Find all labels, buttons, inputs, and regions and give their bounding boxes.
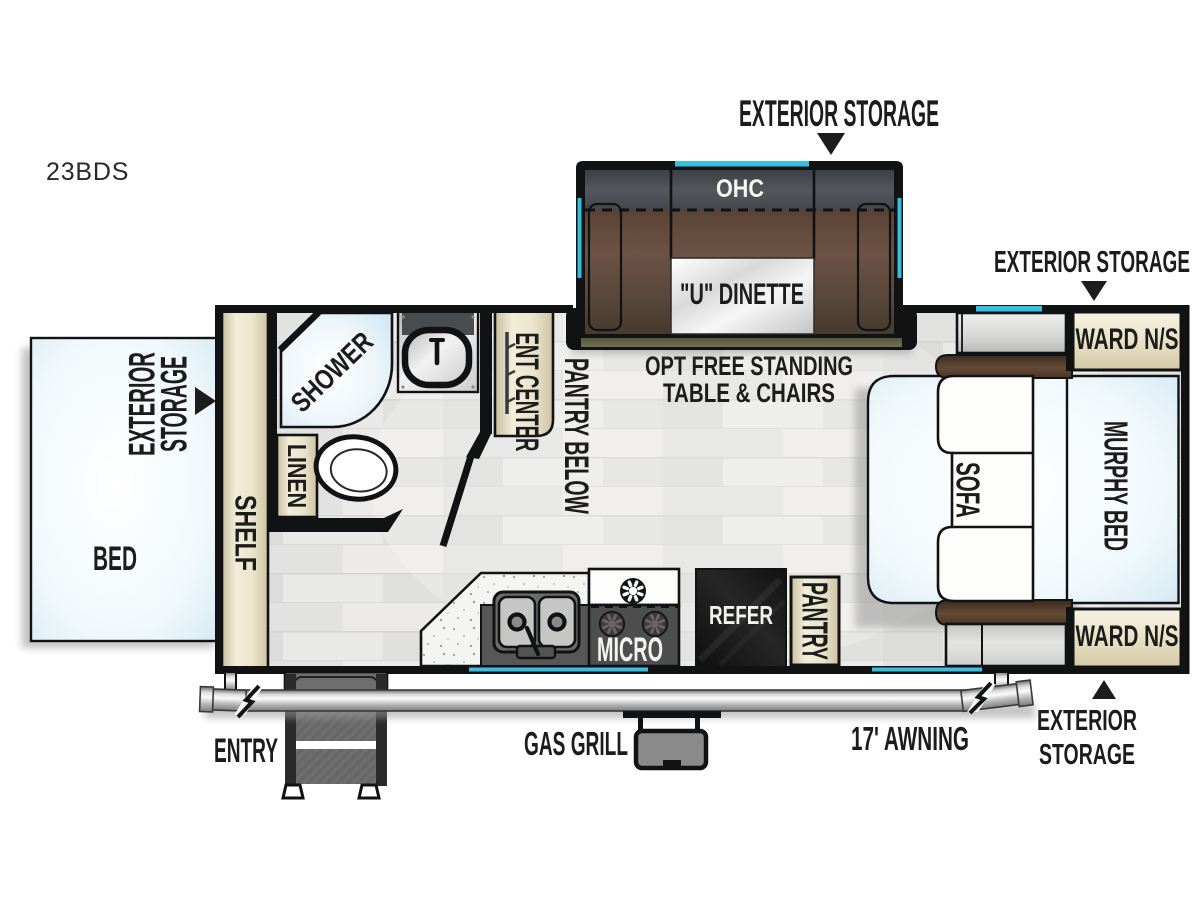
svg-text:PANTRY BELOW: PANTRY BELOW <box>557 358 595 515</box>
svg-text:ENT CENTER: ENT CENTER <box>509 333 545 452</box>
svg-text:LINEN: LINEN <box>282 444 312 508</box>
svg-text:REFER: REFER <box>709 600 773 630</box>
svg-text:BED: BED <box>93 540 137 578</box>
svg-text:MURPHY BED: MURPHY BED <box>1098 421 1135 551</box>
svg-text:STORAGE: STORAGE <box>154 356 195 452</box>
svg-text:STORAGE: STORAGE <box>1039 739 1135 771</box>
svg-text:OHC: OHC <box>716 175 764 203</box>
svg-text:SHELF: SHELF <box>229 495 262 571</box>
svg-text:23BDS: 23BDS <box>46 158 129 186</box>
svg-text:GAS GRILL: GAS GRILL <box>524 725 628 762</box>
svg-text:SOFA: SOFA <box>950 462 987 518</box>
svg-text:"U" DINETTE: "U" DINETTE <box>680 278 804 311</box>
svg-text:17' AWNING: 17' AWNING <box>851 720 969 757</box>
svg-text:MICRO: MICRO <box>597 631 663 669</box>
svg-text:WARD N/S: WARD N/S <box>1076 620 1179 653</box>
svg-text:ENTRY: ENTRY <box>214 732 278 770</box>
svg-text:PANTRY: PANTRY <box>795 582 836 660</box>
svg-text:EXTERIOR: EXTERIOR <box>1037 705 1137 737</box>
svg-text:OPT FREE STANDING: OPT FREE STANDING <box>645 351 853 381</box>
svg-text:EXTERIOR STORAGE: EXTERIOR STORAGE <box>994 244 1190 279</box>
svg-text:TABLE & CHAIRS: TABLE & CHAIRS <box>663 378 835 408</box>
svg-text:WARD N/S: WARD N/S <box>1076 323 1179 356</box>
svg-text:EXTERIOR STORAGE: EXTERIOR STORAGE <box>739 93 939 134</box>
